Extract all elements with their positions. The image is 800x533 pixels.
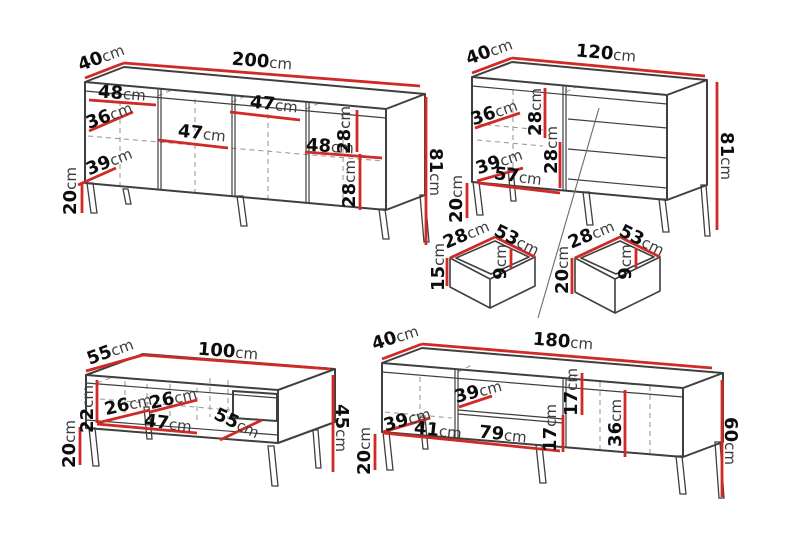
diagram-canvas: 40cm 200cm 48cm 36cm 47cm 47cm 39cm 48cm… [0, 0, 800, 533]
sideboard-200-width-label: 200cm [231, 49, 293, 75]
sideboard-200-door3-label: 47cm [249, 92, 299, 118]
sideboard-120-width-label: 120cm [575, 40, 637, 66]
drawer-small-drawing: 28cm 53cm 15cm 9cm [428, 215, 543, 308]
tv-stand-gap-top-label: 17cm [561, 368, 582, 416]
coffee-table-opening-label: 22cm [77, 385, 98, 433]
coffee-table-height-label: 45cm [331, 404, 352, 452]
sideboard-200-leg-label: 20cm [60, 167, 81, 215]
sideboard-120-dimension-lines [467, 58, 717, 230]
tv-stand-leg-label: 20cm [354, 427, 375, 475]
coffee-table-drawing: 55cm 100cm 22cm 26cm 26cm 47cm 55cm 20cm… [59, 333, 352, 486]
sideboard-200-height-label: 81cm [425, 148, 446, 196]
coffee-table-leg-label: 20cm [59, 420, 80, 468]
sideboard-200-legs [87, 183, 429, 242]
coffee-table-inner-depth-label: 55cm [211, 404, 263, 443]
sideboard-120-height-label: 81cm [716, 132, 737, 180]
tv-stand-height-label: 60cm [720, 417, 741, 465]
drawer-small-inner-label: 9cm [490, 244, 511, 279]
drawer-large-drawing: 28cm 53cm 20cm 9cm [552, 215, 668, 313]
sideboard-200-gap-bottom-label: 28cm [339, 160, 360, 208]
drawer-large-inner-label: 9cm [615, 244, 636, 279]
sideboard-120-gap-bottom-label: 28cm [541, 126, 562, 174]
sideboard-120-leg-label: 20cm [446, 175, 467, 223]
tv-stand-depth-label: 40cm [369, 320, 421, 355]
tv-stand-drawing: 40cm 180cm 39cm 39cm 41cm 79cm 17cm 17cm… [354, 320, 741, 498]
drawer-small-height-label: 15cm [428, 243, 449, 291]
sideboard-200-base-label: 39cm [83, 143, 135, 180]
sideboard-120-shelf-label: 36cm [468, 95, 520, 130]
coffee-table-legs [89, 407, 321, 486]
tv-stand-gap-bottom-label: 17cm [540, 404, 561, 452]
tv-stand-door-label: 36cm [605, 399, 626, 447]
coffee-table-compartment2-label: 26cm [147, 383, 198, 414]
tv-stand-width-label: 180cm [532, 329, 594, 355]
sideboard-200-drawing: 40cm 200cm 48cm 36cm 47cm 47cm 39cm 48cm… [60, 39, 446, 245]
furniture-dimensions-diagram: 40cm 200cm 48cm 36cm 47cm 47cm 39cm 48cm… [0, 0, 800, 533]
drawer-large-height-label: 20cm [552, 246, 573, 294]
sideboard-200-gap-top-label: 28cm [334, 106, 355, 154]
